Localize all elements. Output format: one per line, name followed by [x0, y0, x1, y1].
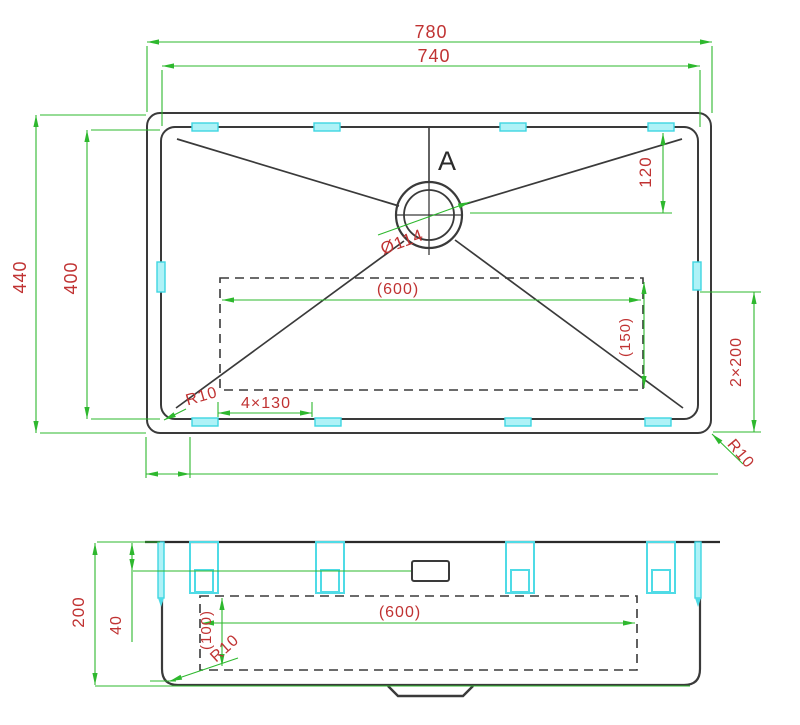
sink-technical-drawing: A 780 740 440 400	[0, 0, 800, 725]
dim-100-label: (100)	[198, 610, 215, 650]
dim-4x130: 4×130	[218, 395, 312, 417]
mounting-clip-left-edge	[157, 262, 165, 292]
dim-600-top: (600)	[222, 281, 641, 300]
dim-rim-to-clip	[146, 437, 718, 478]
dim-740-label: 740	[417, 46, 450, 66]
drawing-canvas: A 780 740 440 400	[0, 0, 800, 725]
section-label-a: A	[438, 146, 456, 176]
hanging-clips	[190, 542, 675, 593]
dim-2x200: 2×200	[700, 292, 761, 432]
dim-440-label: 440	[10, 260, 30, 293]
side-clip-right	[695, 542, 701, 607]
top-view: A 780 740 440 400	[10, 22, 761, 478]
dim-780: 780	[147, 22, 712, 113]
dim-600-side-label: (600)	[379, 604, 421, 621]
dim-600-side: (600)	[202, 604, 635, 623]
radius-callout-bottom-left: R10	[164, 384, 220, 420]
dim-120-label: 120	[636, 156, 655, 187]
dim-drain-diameter-label: Ø114	[378, 225, 426, 258]
dim-2x200-label: 2×200	[728, 337, 745, 387]
dim-4x130-label: 4×130	[241, 395, 291, 412]
dim-400-label: 400	[61, 261, 81, 294]
base-footprint-dashed	[220, 278, 643, 390]
side-view: 200 40 (600) (100) R10	[69, 542, 720, 696]
radius-br-label: R10	[724, 436, 758, 472]
radius-callout-bottom-right: R10	[712, 434, 757, 472]
dim-200-label: 200	[69, 596, 88, 627]
radius-bl-label: R10	[184, 384, 220, 409]
dim-600-top-label: (600)	[377, 281, 419, 298]
dim-40: 40	[108, 543, 411, 642]
dim-150-label: (150)	[617, 317, 634, 357]
drain-boss	[388, 686, 473, 696]
dim-40-label: 40	[108, 615, 125, 635]
basin-body-profile	[162, 542, 700, 685]
dim-400: 400	[61, 130, 160, 419]
side-clip-left	[158, 542, 164, 607]
radius-callout-side: R10	[150, 632, 243, 681]
dim-780-label: 780	[414, 22, 447, 42]
drain-box-side	[412, 561, 449, 581]
dim-150: (150)	[617, 282, 644, 388]
dim-740: 740	[162, 46, 700, 127]
dim-drain-diameter: Ø114	[378, 202, 470, 258]
mounting-clip-right-edge	[693, 262, 701, 290]
